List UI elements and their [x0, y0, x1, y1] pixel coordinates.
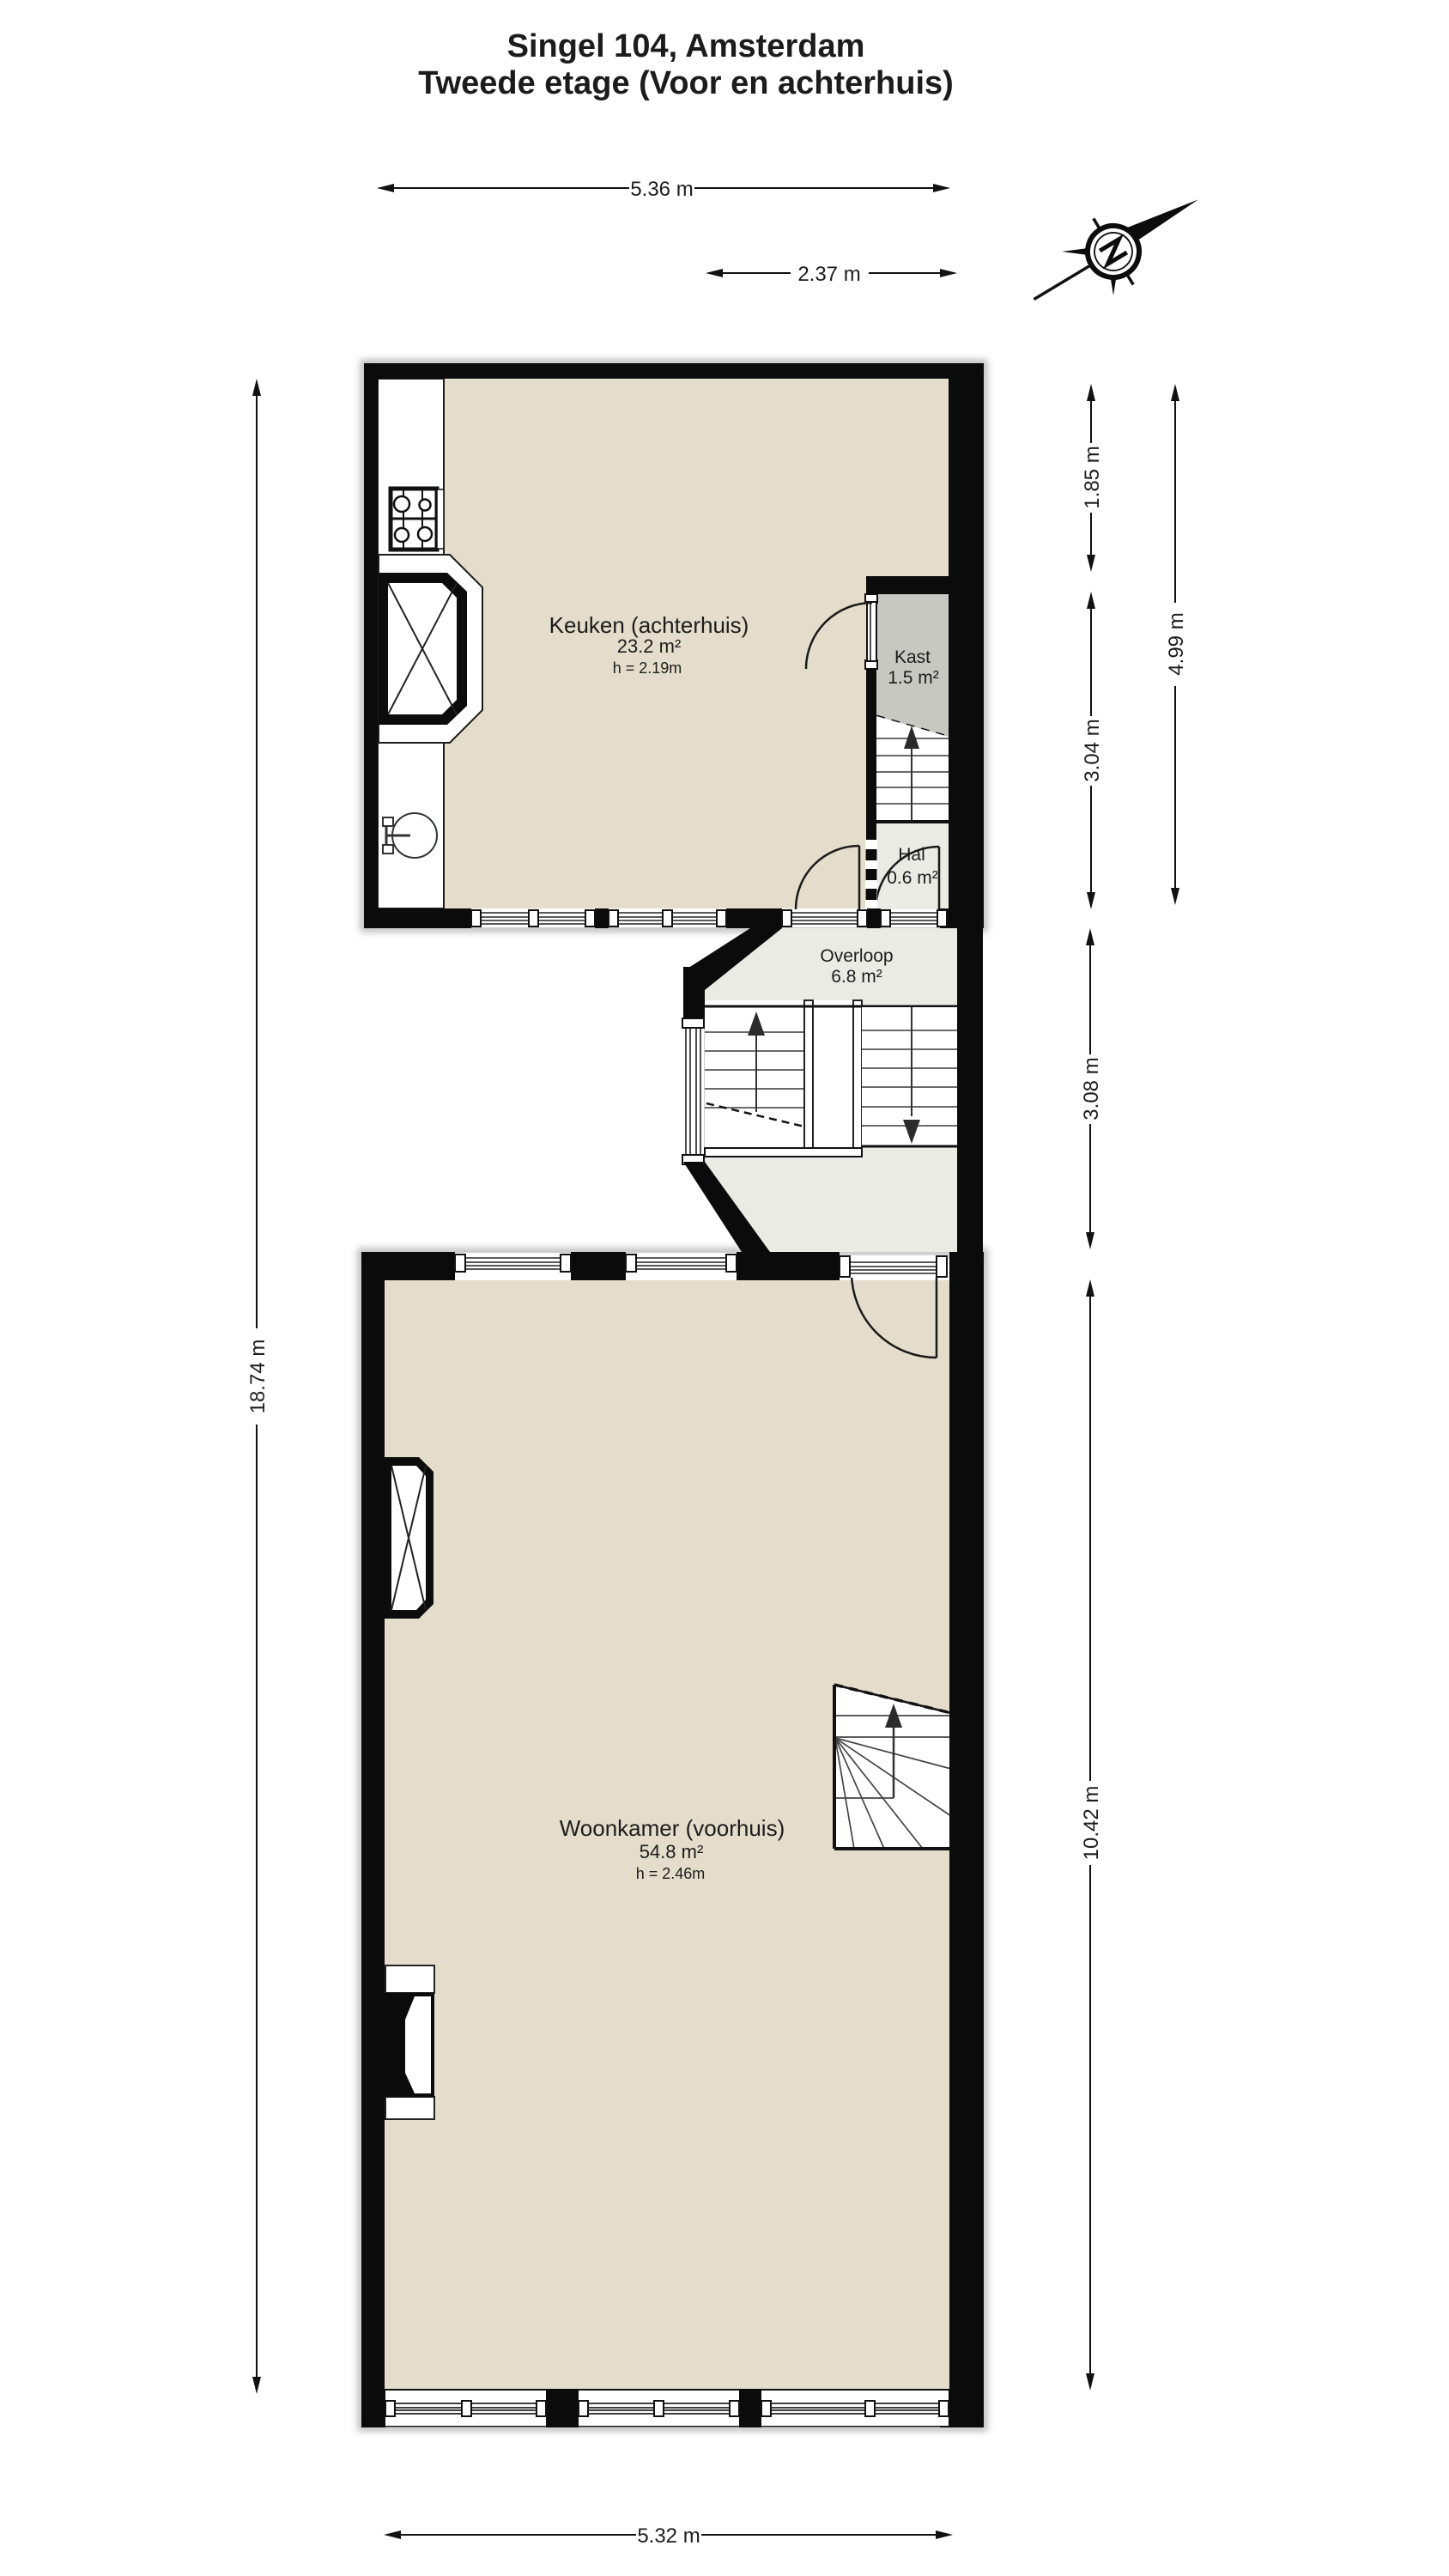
svg-text:Tweede etage (Voor en achterhu: Tweede etage (Voor en achterhuis) — [418, 65, 954, 101]
svg-text:h = 2.46m: h = 2.46m — [636, 1865, 706, 1882]
svg-text:18.74 m: 18.74 m — [246, 1340, 270, 1414]
svg-text:23.2 m²: 23.2 m² — [617, 635, 682, 657]
svg-text:10.42 m: 10.42 m — [1080, 1786, 1103, 1861]
svg-text:4.99 m: 4.99 m — [1165, 612, 1188, 675]
svg-text:5.36 m: 5.36 m — [630, 178, 693, 201]
svg-text:0.6 m²: 0.6 m² — [887, 868, 938, 888]
svg-text:6.8 m²: 6.8 m² — [831, 967, 882, 987]
svg-text:Keuken (achterhuis): Keuken (achterhuis) — [549, 612, 749, 638]
svg-text:2.37 m: 2.37 m — [797, 263, 860, 286]
svg-text:5.32 m: 5.32 m — [637, 2524, 700, 2548]
svg-text:3.04 m: 3.04 m — [1081, 719, 1104, 781]
svg-text:Overloop: Overloop — [820, 946, 893, 966]
svg-text:54.8 m²: 54.8 m² — [640, 1841, 704, 1862]
svg-text:Singel 104, Amsterdam: Singel 104, Amsterdam — [507, 28, 865, 64]
svg-text:h = 2.19m: h = 2.19m — [613, 659, 682, 677]
svg-text:Woonkamer (voorhuis): Woonkamer (voorhuis) — [560, 1815, 785, 1841]
svg-text:Kast: Kast — [894, 647, 931, 667]
svg-text:Hal: Hal — [898, 845, 925, 865]
svg-text:3.08 m: 3.08 m — [1080, 1057, 1103, 1120]
svg-text:1.85 m: 1.85 m — [1081, 446, 1104, 508]
svg-text:1.5 m²: 1.5 m² — [888, 668, 939, 688]
